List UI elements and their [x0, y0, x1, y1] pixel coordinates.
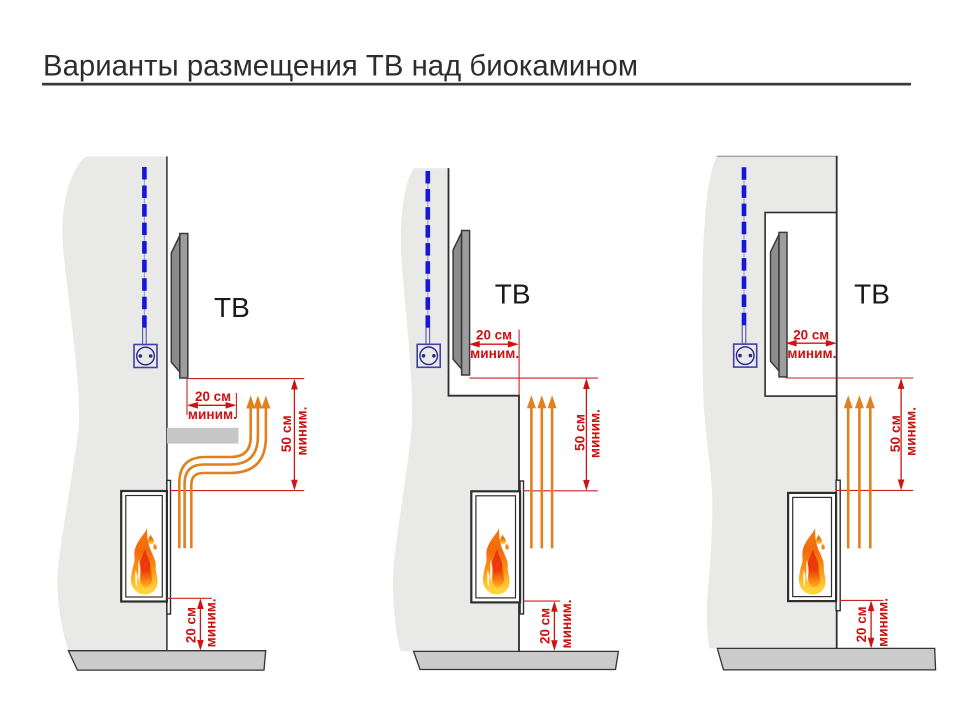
svg-text:миним.: миним. [904, 407, 919, 456]
svg-text:миним.: миним. [588, 409, 603, 458]
svg-text:миним.: миним. [470, 346, 519, 361]
svg-text:миним.: миним. [559, 600, 574, 649]
svg-text:20 см: 20 см [195, 389, 231, 404]
svg-text:20 см: 20 см [793, 327, 829, 342]
svg-text:50 см: 50 см [279, 415, 294, 452]
svg-text:миним.: миним. [188, 407, 237, 422]
svg-text:ТВ: ТВ [495, 279, 531, 310]
svg-text:20 см: 20 см [183, 607, 198, 643]
svg-text:миним.: миним. [294, 407, 309, 456]
svg-text:20 см: 20 см [854, 606, 869, 642]
svg-text:миним.: миним. [787, 346, 836, 361]
svg-text:ТВ: ТВ [854, 279, 890, 310]
svg-text:миним.: миним. [204, 598, 219, 647]
svg-text:50 см: 50 см [572, 414, 587, 451]
svg-text:20 см: 20 см [476, 328, 512, 343]
svg-text:ТВ: ТВ [214, 292, 250, 323]
svg-text:миним.: миним. [875, 598, 890, 647]
svg-text:20 см: 20 см [537, 608, 552, 644]
svg-text:50 см: 50 см [888, 415, 903, 452]
svg-text:Варианты размещения ТВ над био: Варианты размещения ТВ над биокамином [43, 49, 638, 82]
